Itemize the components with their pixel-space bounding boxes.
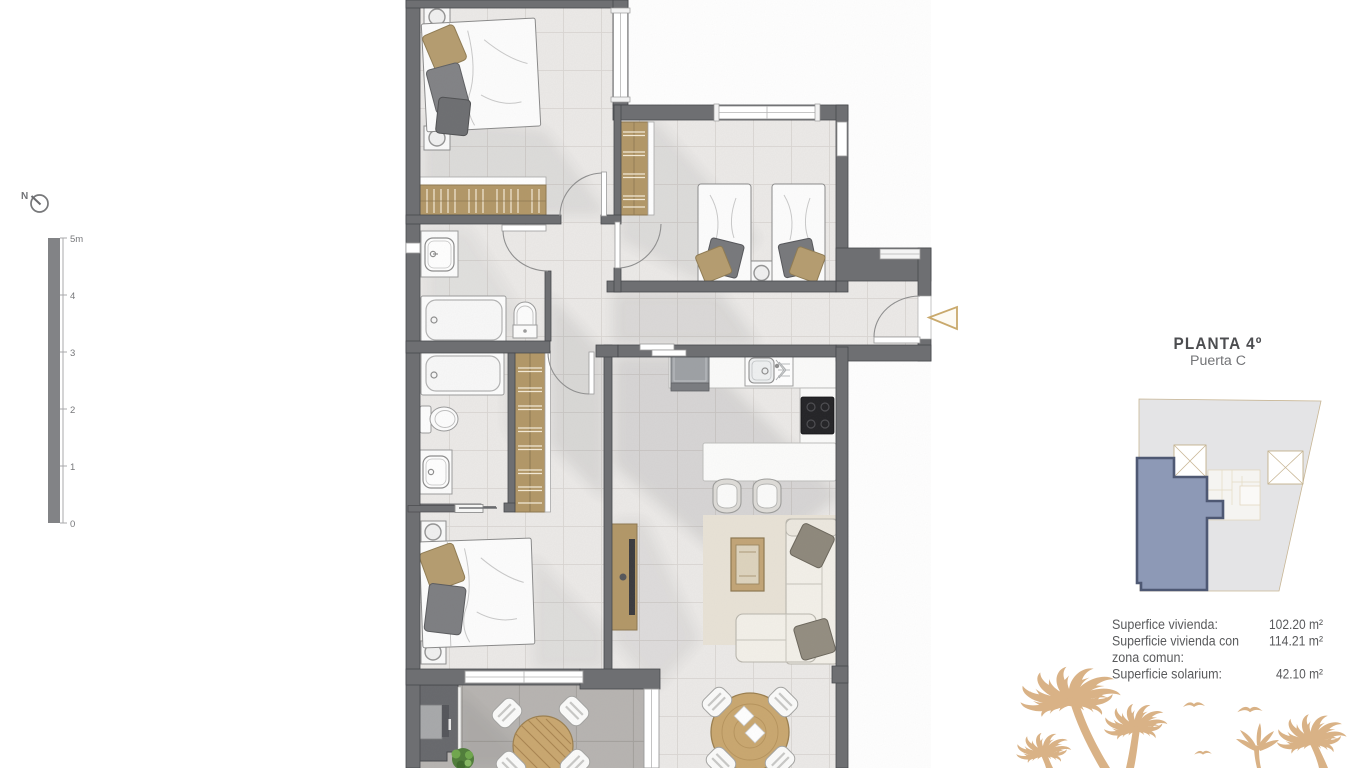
svg-text:102.20 m²: 102.20 m² (1269, 617, 1323, 632)
svg-text:zona comun:: zona comun: (1112, 650, 1184, 665)
svg-text:Superfice vivienda:: Superfice vivienda: (1112, 617, 1218, 632)
svg-text:Puerta C: Puerta C (1190, 353, 1246, 368)
svg-text:42.10 m²: 42.10 m² (1276, 667, 1323, 682)
svg-text:5m: 5m (70, 234, 83, 245)
svg-text:Superficie solarium:: Superficie solarium: (1112, 667, 1222, 682)
svg-text:2: 2 (70, 405, 75, 416)
svg-text:PLANTA 4º: PLANTA 4º (1174, 335, 1263, 353)
svg-text:1: 1 (70, 462, 75, 473)
svg-text:0: 0 (70, 519, 75, 530)
svg-text:N: N (21, 191, 28, 202)
svg-text:3: 3 (70, 348, 75, 359)
svg-text:114.21 m²: 114.21 m² (1269, 634, 1323, 649)
svg-text:Superficie vivienda con: Superficie vivienda con (1112, 634, 1239, 649)
svg-text:4: 4 (70, 291, 75, 302)
